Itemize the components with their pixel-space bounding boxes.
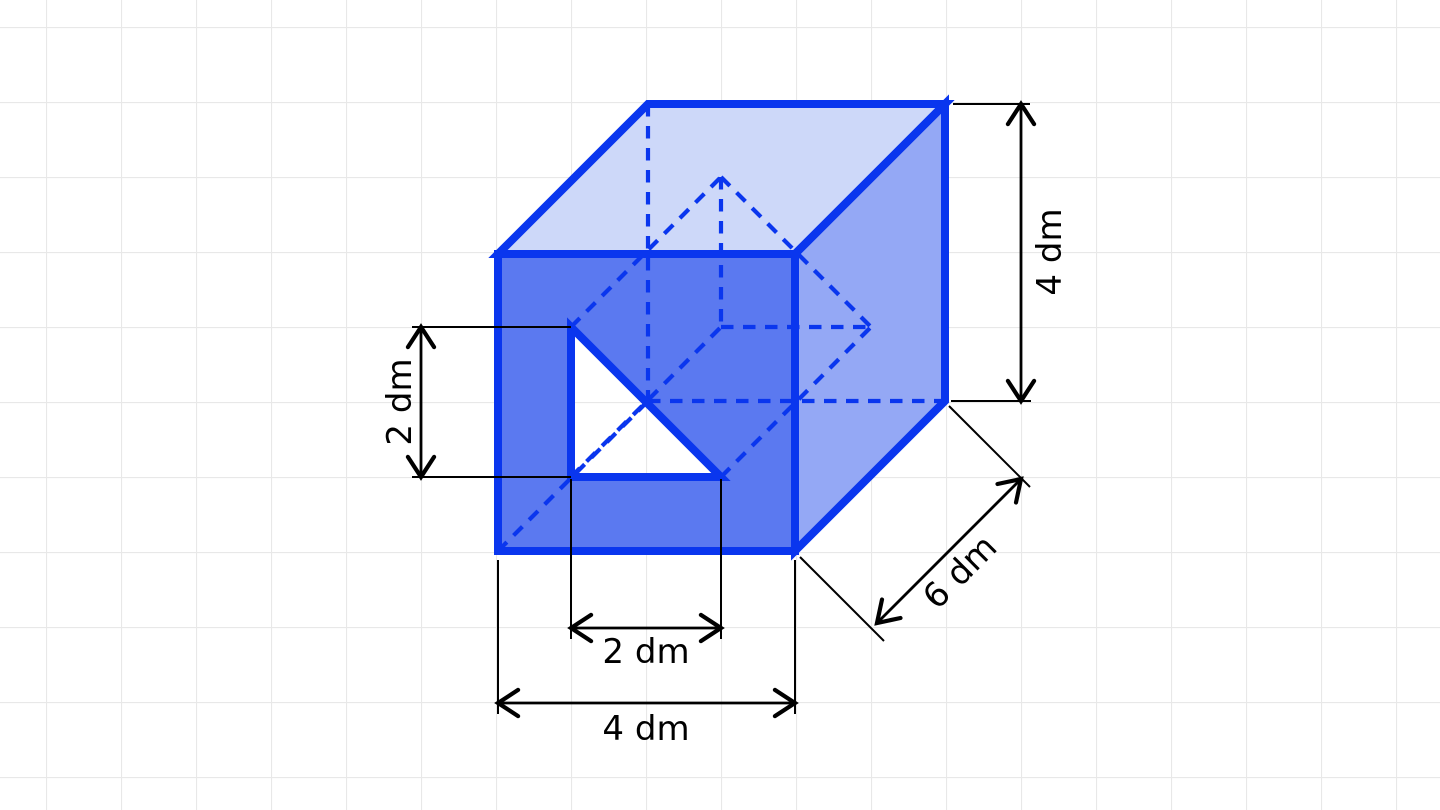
grid-paper-canvas: 4 dm 6 dm 2 dm 2 dm 4 dm [0,0,1440,810]
height-label: 4 dm [1030,208,1070,295]
hole-height-label: 2 dm [380,358,420,445]
geometry-diagram: 4 dm 6 dm 2 dm 2 dm 4 dm [0,0,1440,810]
width-label: 4 dm [602,709,689,749]
hole-width-label: 2 dm [602,632,689,672]
